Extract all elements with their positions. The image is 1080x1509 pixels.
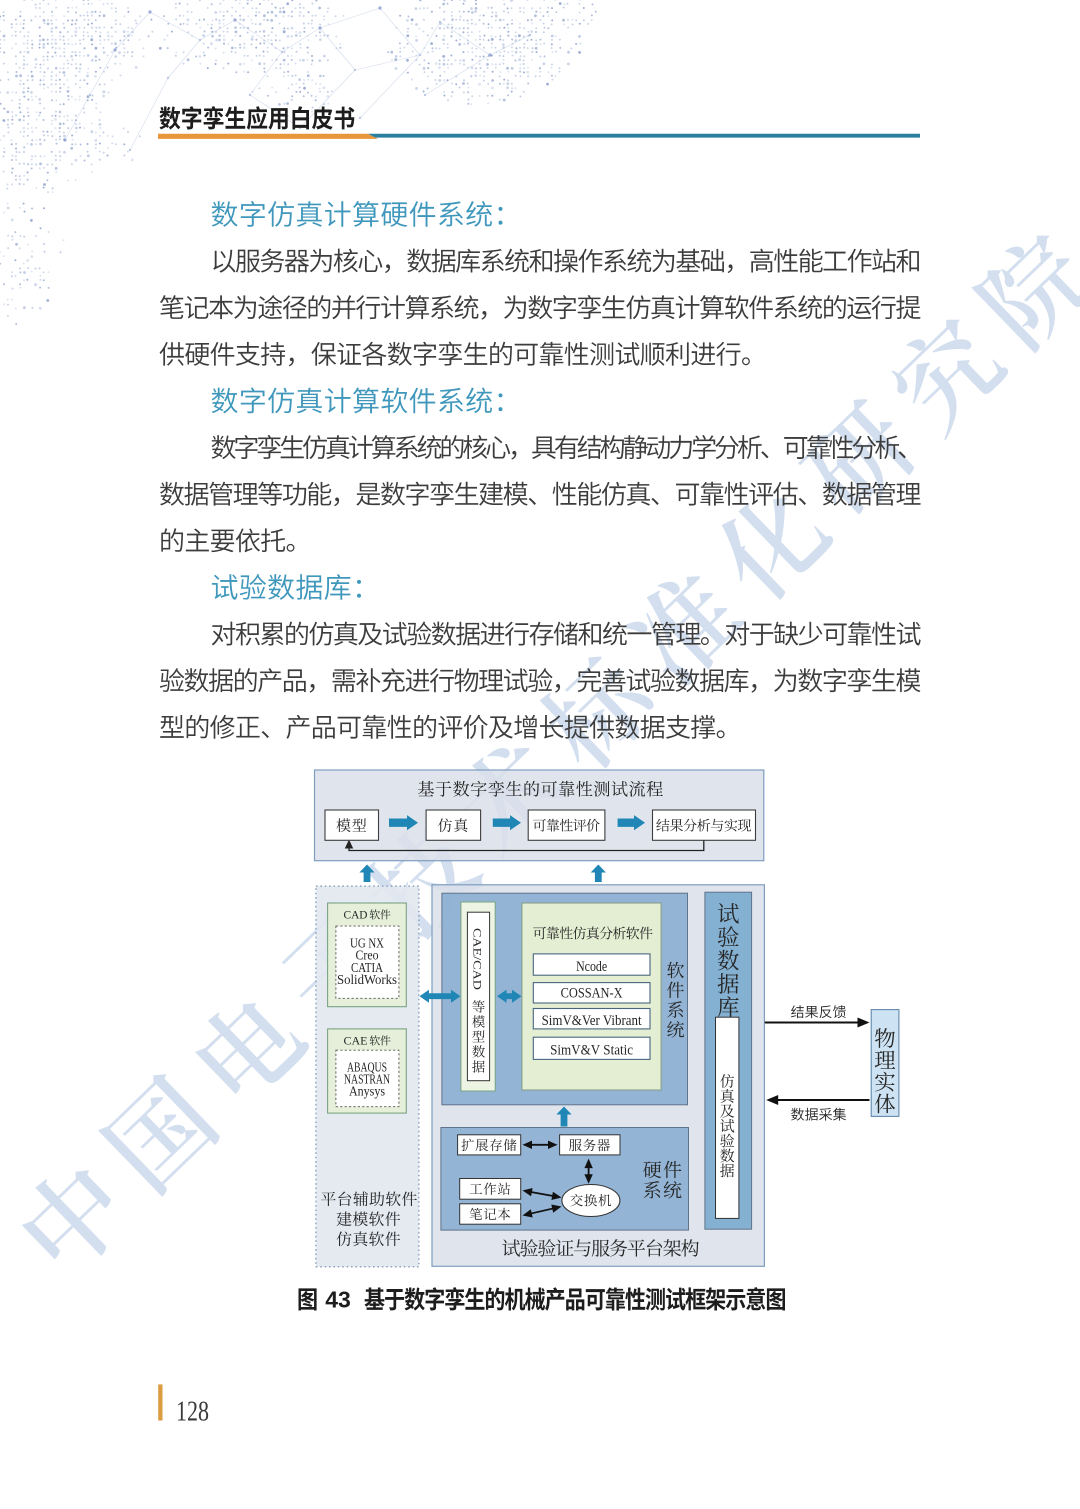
svg-text:SolidWorks: SolidWorks	[337, 972, 397, 987]
svg-text:128: 128	[176, 1397, 209, 1428]
svg-text:Ncode: Ncode	[576, 959, 607, 975]
svg-text:CAD: CAD	[344, 908, 368, 922]
svg-text:SimV&Ver Vibrant: SimV&Ver Vibrant	[542, 1013, 643, 1029]
svg-text:Anysys: Anysys	[349, 1084, 385, 1099]
svg-text:43: 43	[325, 1287, 351, 1313]
svg-text:CAE/CAD: CAE/CAD	[471, 928, 485, 991]
svg-text:SimV&V Static: SimV&V Static	[550, 1043, 633, 1059]
svg-text:CAE: CAE	[344, 1034, 368, 1048]
svg-text:COSSAN-X: COSSAN-X	[561, 986, 623, 1002]
